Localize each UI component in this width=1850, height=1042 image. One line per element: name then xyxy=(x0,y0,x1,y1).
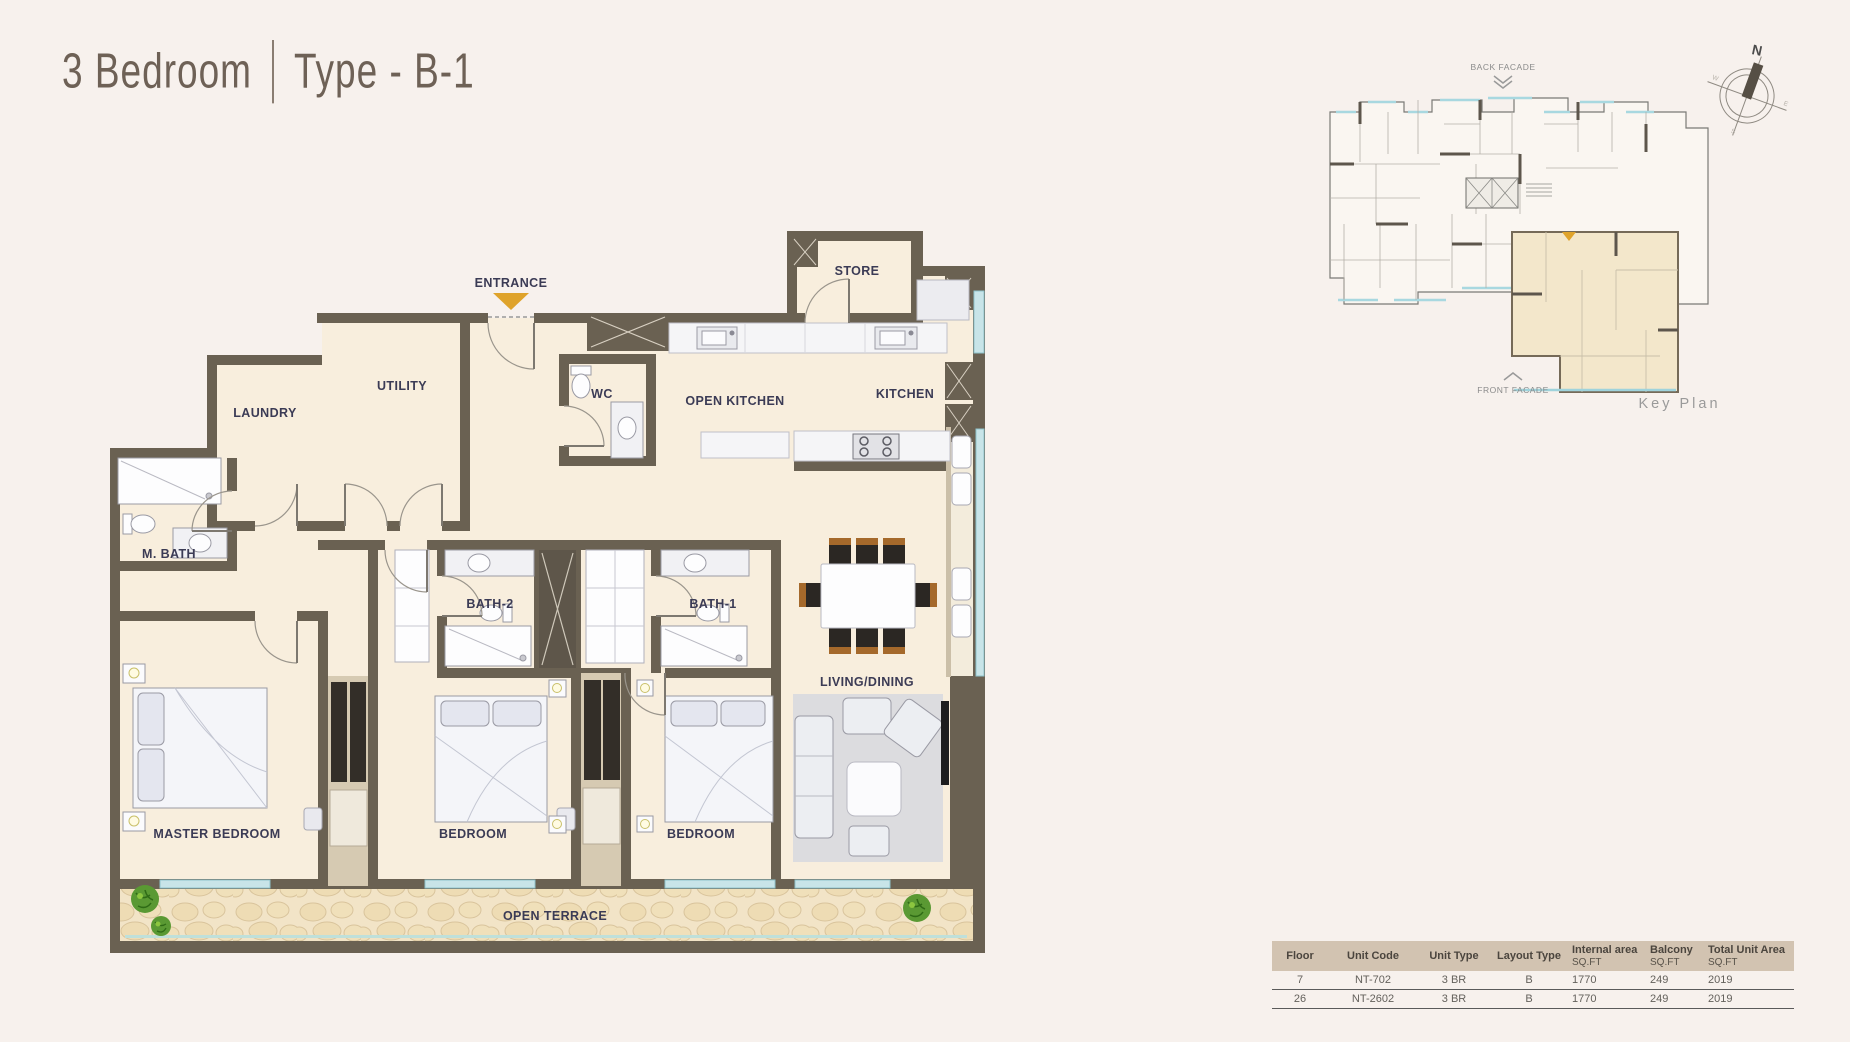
col-balcony: BalconySQ.FT xyxy=(1646,941,1704,971)
cell-unit-type: 3 BR xyxy=(1418,971,1490,990)
label-living-dining: LIVING/DINING xyxy=(820,675,914,689)
label-utility: UTILITY xyxy=(377,379,427,393)
table-row: 7 NT-702 3 BR B 1770 249 2019 xyxy=(1272,971,1794,990)
label-laundry: LAUNDRY xyxy=(233,406,297,420)
compass-icon: W E S N xyxy=(1700,36,1800,146)
svg-text:W: W xyxy=(1711,74,1720,83)
cell-layout-type: B xyxy=(1490,971,1568,990)
col-internal-area: Internal areaSQ.FT xyxy=(1568,941,1646,971)
col-unit-type: Unit Type xyxy=(1418,941,1490,971)
cell-unit-type: 3 BR xyxy=(1418,990,1490,1009)
compass: W E S N xyxy=(1700,36,1800,146)
label-bedroom-3: BEDROOM xyxy=(667,827,735,841)
front-facade-chevron-icon xyxy=(1504,373,1522,380)
unit-table: Floor Unit Code Unit Type Layout Type In… xyxy=(1272,941,1794,1009)
key-plan-caption: Key Plan xyxy=(1597,396,1762,412)
col-total-area: Total Unit AreaSQ.FT xyxy=(1704,941,1794,971)
living-set xyxy=(793,694,949,862)
cell-balcony: 249 xyxy=(1646,971,1704,990)
cell-total-area: 2019 xyxy=(1704,990,1794,1009)
label-open-terrace: OPEN TERRACE xyxy=(503,909,607,923)
cell-total-area: 2019 xyxy=(1704,971,1794,990)
cell-floor: 26 xyxy=(1272,990,1328,1009)
cell-internal-area: 1770 xyxy=(1568,971,1646,990)
entrance-arrow-icon xyxy=(493,293,529,310)
page-title-name: 3 Bedroom xyxy=(62,44,252,99)
cell-internal-area: 1770 xyxy=(1568,990,1646,1009)
label-entrance: ENTRANCE xyxy=(475,276,548,290)
label-bedroom-2: BEDROOM xyxy=(439,827,507,841)
label-master-bedroom: MASTER BEDROOM xyxy=(153,827,280,841)
label-m-bath: M. BATH xyxy=(142,547,196,561)
page-title: 3 Bedroom Type - B-1 xyxy=(62,40,475,103)
label-kitchen: KITCHEN xyxy=(876,387,934,401)
label-bath2: BATH-2 xyxy=(466,597,513,611)
table-row: 26 NT-2602 3 BR B 1770 249 2019 xyxy=(1272,990,1794,1009)
col-floor: Floor xyxy=(1272,941,1328,971)
cell-unit-code: NT-702 xyxy=(1328,971,1418,990)
key-plan: BACK FACADE FRONT xyxy=(1298,56,1742,408)
svg-text:E: E xyxy=(1782,100,1789,108)
label-bath1: BATH-1 xyxy=(689,597,736,611)
cell-balcony: 249 xyxy=(1646,990,1704,1009)
master-bed xyxy=(123,664,267,831)
col-layout-type: Layout Type xyxy=(1490,941,1568,971)
label-store: STORE xyxy=(835,264,880,278)
cell-floor: 7 xyxy=(1272,971,1328,990)
back-facade-chevron-icon xyxy=(1494,76,1512,88)
unit-table-header-row: Floor Unit Code Unit Type Layout Type In… xyxy=(1272,941,1794,971)
cell-layout-type: B xyxy=(1490,990,1568,1009)
title-divider xyxy=(272,40,274,103)
floor-plan: ENTRANCE LAUNDRY UTILITY WC OPEN KITCHEN… xyxy=(105,196,1013,958)
label-wc: WC xyxy=(591,387,613,401)
page-title-variant: Type - B-1 xyxy=(294,44,475,99)
svg-text:S: S xyxy=(1730,128,1737,136)
bedroom2-bed xyxy=(435,680,566,833)
col-unit-code: Unit Code xyxy=(1328,941,1418,971)
cell-unit-code: NT-2602 xyxy=(1328,990,1418,1009)
brochure-page: { "title": { "name": "3 Bedroom", "divid… xyxy=(0,0,1850,1042)
label-open-kitchen: OPEN KITCHEN xyxy=(685,394,784,408)
terrace-balustrade xyxy=(125,935,967,938)
back-facade-label: BACK FACADE xyxy=(1470,62,1535,72)
balcony-parapet xyxy=(946,427,951,677)
front-facade-label: FRONT FACADE xyxy=(1477,385,1549,395)
compass-north-label: N xyxy=(1751,41,1764,59)
key-plan-building xyxy=(1330,98,1708,392)
floor-plan-svg: ENTRANCE LAUNDRY UTILITY WC OPEN KITCHEN… xyxy=(105,196,1013,958)
key-plan-svg: BACK FACADE FRONT xyxy=(1298,56,1742,408)
